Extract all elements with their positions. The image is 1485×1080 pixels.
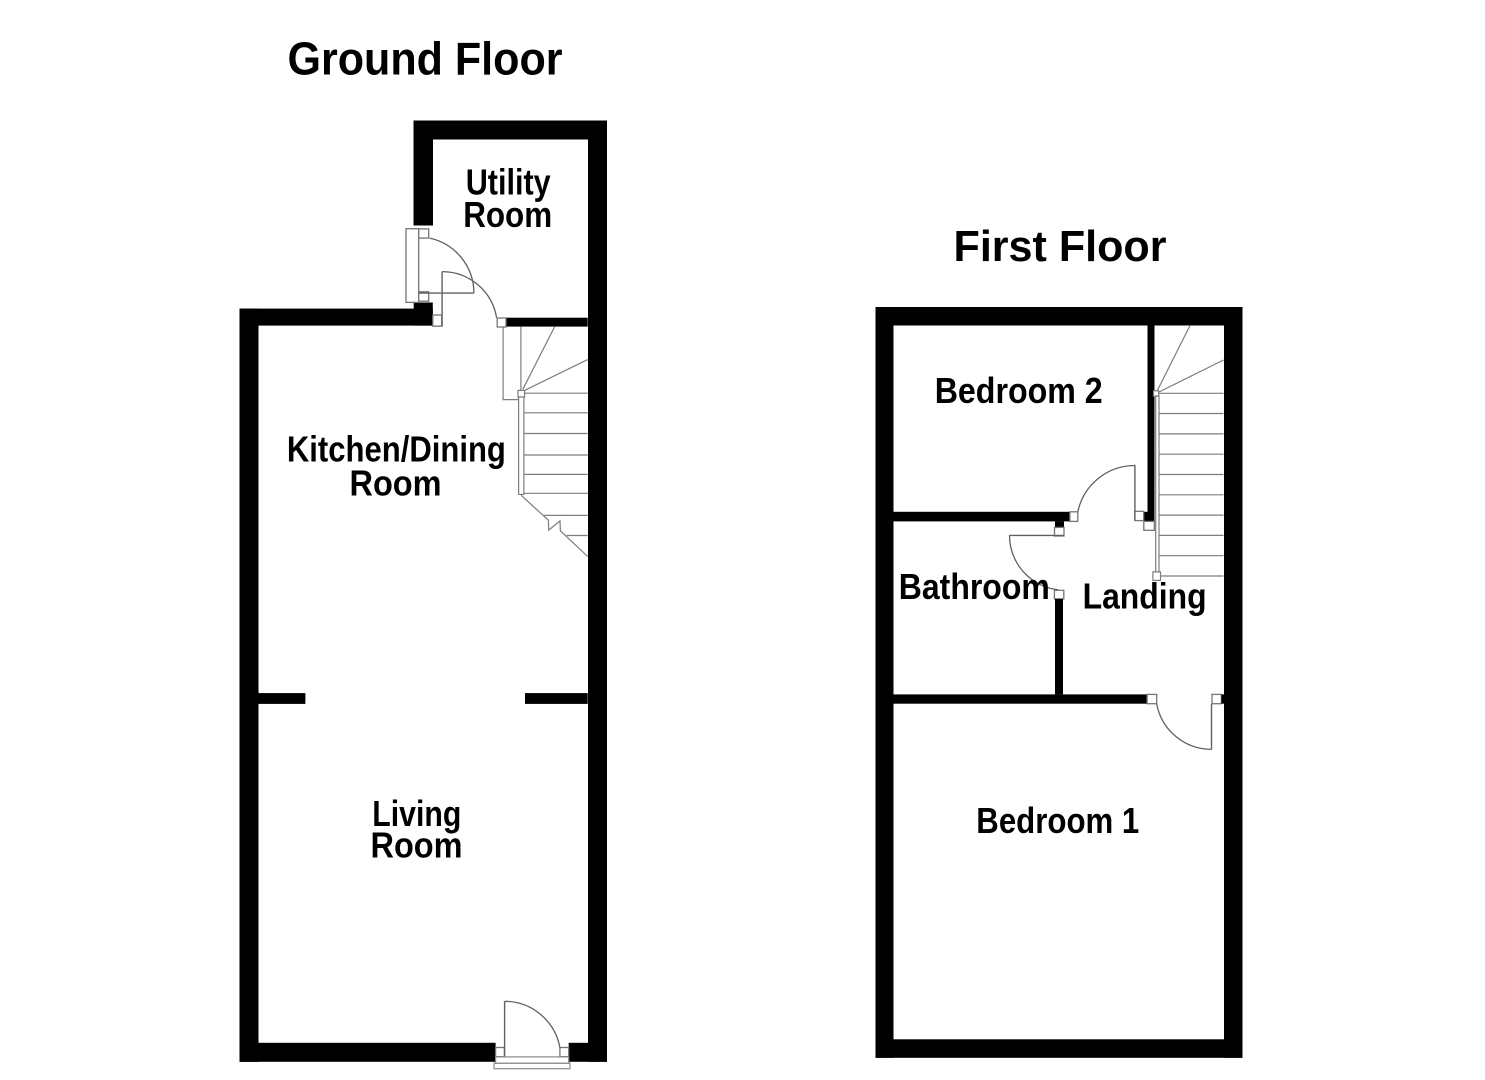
svg-text:Bathroom: Bathroom (899, 566, 1050, 607)
svg-text:Room: Room (350, 462, 442, 503)
svg-text:Bedroom 1: Bedroom 1 (976, 800, 1139, 841)
svg-text:Room: Room (463, 194, 552, 235)
svg-text:Room: Room (371, 825, 463, 866)
svg-text:First Floor: First Floor (954, 222, 1167, 271)
svg-text:Bedroom 2: Bedroom 2 (935, 370, 1103, 411)
svg-text:Landing: Landing (1083, 575, 1207, 616)
svg-text:Ground Floor: Ground Floor (288, 33, 563, 85)
